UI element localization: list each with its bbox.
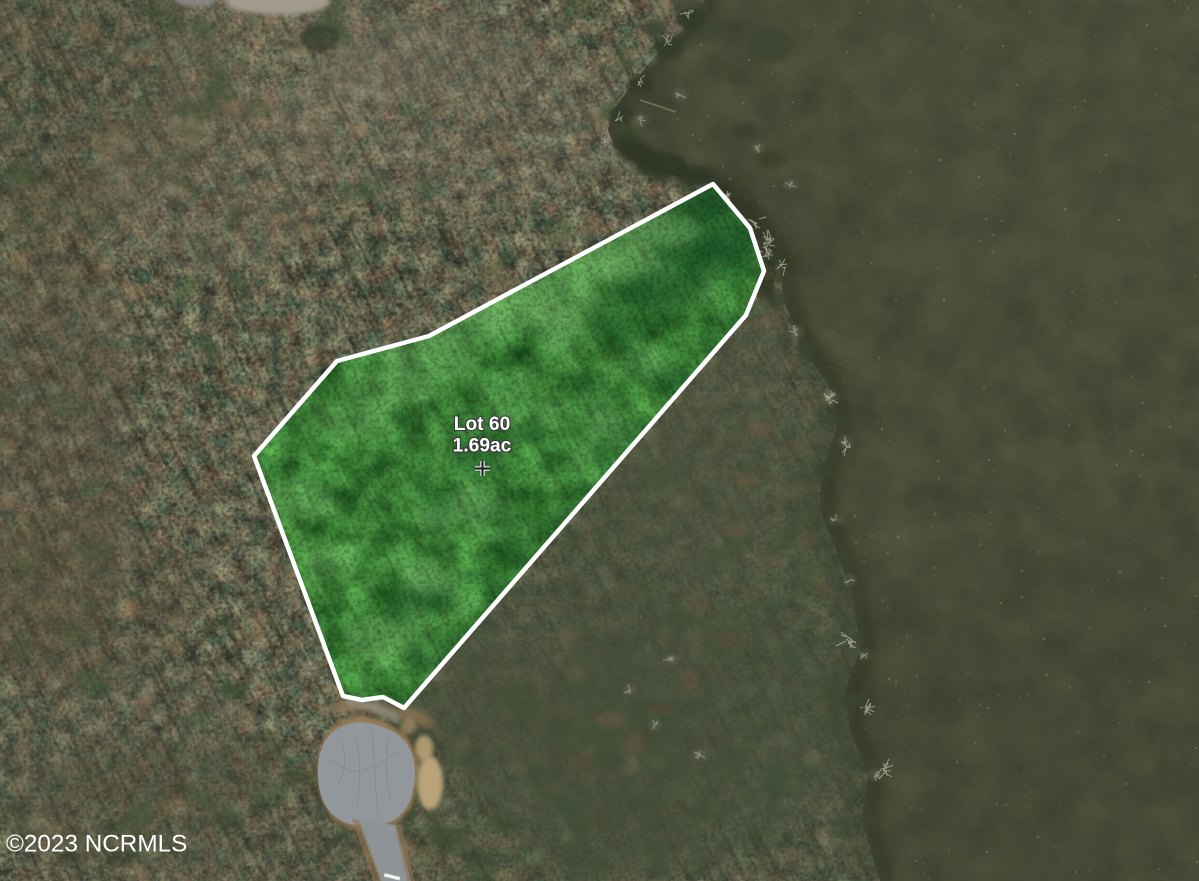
svg-text:Lot 60: Lot 60 — [454, 414, 511, 435]
svg-text:©2023 NCRMLS: ©2023 NCRMLS — [6, 831, 187, 858]
svg-text:1.69ac: 1.69ac — [453, 436, 512, 457]
